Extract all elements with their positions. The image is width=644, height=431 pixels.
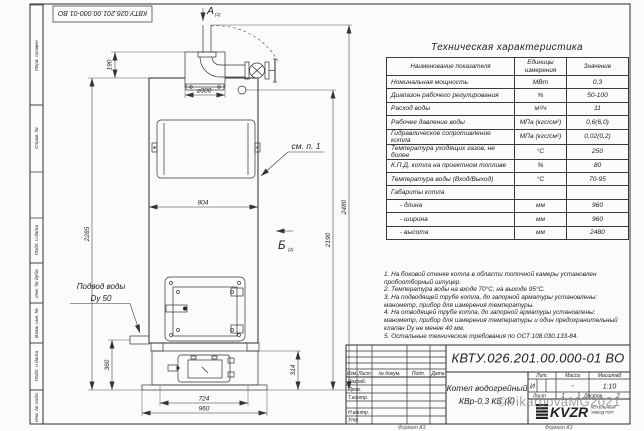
tech-table-header-row: Наименование показателя Единицы измерени… — [387, 58, 629, 76]
furnace-door — [165, 277, 245, 341]
svg-text:804: 804 — [198, 200, 209, 207]
table-row: Гидравлическое сопротивление котлаМПа (к… — [387, 129, 629, 144]
tech-table-title: Техническая характеристика — [386, 42, 628, 53]
svg-text:Dy 50: Dy 50 — [91, 294, 112, 303]
tb-label-nkontr: Н.контр. — [348, 410, 369, 416]
ash-door — [168, 355, 234, 382]
svg-text:Подвод воды: Подвод воды — [77, 282, 126, 291]
table-row: - длинамм960 — [387, 199, 629, 212]
drawing-sheet: { "frame": { "stamp_top": "КВТУ.026.201.… — [0, 0, 644, 430]
note-4: 4. На отводящей трубе котла, до запорной… — [384, 309, 628, 332]
table-row: К.П.Д. котла на проектном топливе%80 — [387, 159, 629, 172]
tb-label-massa: Масса — [565, 373, 580, 379]
table-row: Температура воды (Вход/Выход)°С70-95 — [387, 172, 629, 185]
view-label-b: Б (2) — [276, 231, 294, 252]
tb-designation: КВТУ.026.201.00.000-01 ВО — [451, 351, 624, 366]
table-row: - ширинамм960 — [387, 213, 629, 226]
dim-190: 190 — [107, 52, 116, 78]
ash-door-handle — [168, 365, 177, 371]
side-label-sprav-no: Справ. № — [34, 127, 40, 149]
tb-label-data: Дата — [430, 371, 444, 377]
dim-2190: 2190 — [325, 90, 333, 390]
tb-label-tkontr: Т.контр. — [348, 395, 368, 401]
outlet-valve — [220, 59, 277, 82]
base-section — [142, 343, 267, 390]
svg-text:Б: Б — [278, 240, 286, 252]
dim-804: 804 — [149, 200, 258, 208]
tb-product-line1: Котел водогрейный — [447, 383, 528, 393]
top-stamp-text: КВТУ.026.201.00.000-01 ВО — [57, 9, 147, 16]
ash-door-hinge-bottom — [228, 372, 234, 377]
note-2: 2. Температура воды на входе 70°С, на вы… — [384, 286, 628, 294]
dim-2285: 2285 — [84, 78, 92, 390]
water-inlet-pipe — [130, 336, 149, 344]
table-row: Номинальная мощностьМВт0,3 — [387, 76, 629, 89]
table-row: Расход водым³/ч11 — [387, 102, 629, 115]
svg-text:(2): (2) — [288, 247, 294, 252]
dim-360: 360 — [104, 340, 112, 390]
tb-massa-value: - — [571, 383, 574, 390]
upper-door — [152, 120, 260, 178]
tb-label-lit: Лит. — [535, 373, 548, 379]
table-row: Диапазон рабочего регулирования%50-100 — [387, 89, 629, 102]
dim-724: 724 — [160, 396, 248, 404]
svg-text:190: 190 — [107, 59, 114, 70]
note-1: 1. На боковой стенке котла в области топ… — [384, 271, 628, 286]
col-header-name: Наименование показателя — [387, 58, 515, 76]
technical-notes: 1. На боковой стенке котла в области топ… — [384, 271, 628, 340]
svg-text:А: А — [206, 5, 214, 17]
tb-label-podp: Подп. — [412, 371, 425, 377]
frame-side-boxes: Перв. примен. Справ. № Подп. и дата Инв.… — [30, 5, 43, 424]
table-row: Габариты котла — [387, 186, 629, 199]
svg-text:960: 960 — [199, 406, 210, 413]
tb-label-razrab: Разраб. — [348, 379, 366, 385]
tb-label-doc: № докум. — [378, 371, 400, 377]
tb-label-utv: Утв. — [348, 418, 359, 424]
ash-door-hinge-top — [228, 358, 234, 363]
tb-label-prov: Пров. — [348, 387, 361, 393]
table-row: Рабочее давление водыМПа (кгс/см²)0,6(6,… — [387, 116, 629, 129]
svg-text:314: 314 — [290, 364, 297, 375]
svg-text:360: 360 — [104, 359, 111, 370]
watermark: ©PikarpovaMG2021 — [497, 394, 621, 409]
kvzr-logo-sub2: ЗАВОД РЭП — [591, 410, 614, 415]
dim-960: 960 — [142, 406, 267, 414]
table-row: Температура уходящих газов, не более°С25… — [387, 144, 629, 159]
svg-text:2285: 2285 — [84, 226, 91, 242]
svg-text:см. п. 1: см. п. 1 — [292, 141, 321, 151]
side-label-perv-primen: Перв. примен. — [34, 39, 40, 71]
side-label-inv-podl: Инв. № подл. — [34, 392, 40, 422]
side-label-podp-data-1: Подп. и дата — [34, 225, 40, 255]
rotation-arc — [211, 26, 279, 63]
sampling-port — [238, 86, 246, 94]
flue-collar — [185, 52, 225, 90]
tech-table: Наименование показателя Единицы измерени… — [386, 57, 629, 240]
dim-314: 314 — [290, 351, 298, 390]
water-inlet-label: Подвод воды Dy 50 — [70, 282, 140, 333]
top-stamp: КВТУ.026.201.00.000-01 ВО — [53, 6, 152, 22]
dim-2480: 2480 — [341, 25, 349, 390]
side-label-inv-dubl: Инв. № дубл. — [34, 268, 40, 298]
note-3: 3. На подводящей трубе котла, до запорно… — [384, 294, 628, 309]
svg-text:724: 724 — [199, 396, 210, 403]
svg-text:⌀300: ⌀300 — [197, 88, 212, 95]
table-row: - высотамм2480 — [387, 226, 629, 239]
tb-label-masshtab: Масштаб — [598, 373, 622, 379]
col-header-value: Значение — [567, 58, 629, 76]
tb-label-izm: Изм — [347, 371, 357, 377]
boiler-front-view — [130, 25, 279, 390]
svg-text:2190: 2190 — [325, 232, 332, 248]
tb-lit-value: И — [530, 384, 536, 391]
note-5: 5. Остальные технические требования по О… — [384, 333, 628, 341]
svg-text:(2): (2) — [215, 12, 221, 17]
callout-see-item-1: см. п. 1 — [261, 141, 324, 176]
view-label-a: А (2) — [203, 5, 221, 21]
tb-label-list: Лист — [357, 371, 371, 377]
side-label-vzam-inv: Взам. инв. № — [34, 308, 40, 338]
col-header-units: Единицы измерения — [515, 58, 567, 76]
svg-text:2480: 2480 — [341, 199, 348, 215]
tech-characteristics: Техническая характеристика Наименование … — [386, 42, 628, 240]
tb-scale-value: 1:10 — [603, 384, 617, 391]
side-label-podp-data-2: Подп. и дата — [34, 351, 40, 381]
title-block: Изм Лист № докум. Подп. Дата Разраб. Про… — [346, 345, 630, 424]
